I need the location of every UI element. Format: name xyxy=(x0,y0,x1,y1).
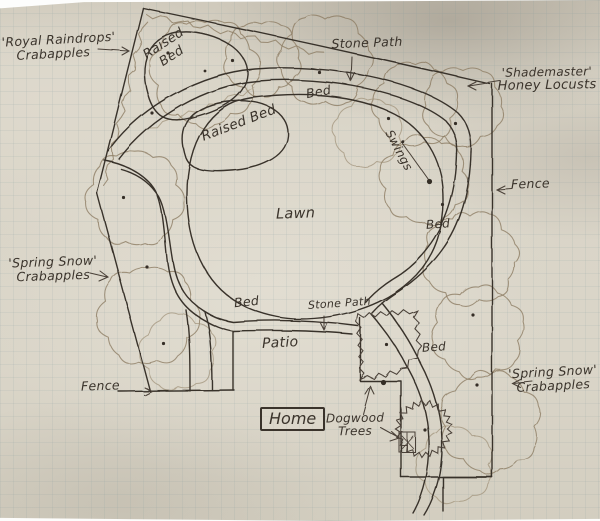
asterisk-mark xyxy=(402,433,413,450)
label-line: Trees xyxy=(326,425,384,439)
stone-path-outer xyxy=(108,68,471,152)
garden-plan-photo: 'Royal Raindrops' Crabapples Raised Bed … xyxy=(0,0,600,521)
label-royal-raindrops-crabapples: 'Royal Raindrops' Crabapples xyxy=(1,30,104,63)
swing-post-dot xyxy=(426,178,431,183)
label-fence-right: Fence xyxy=(511,176,550,191)
label-line: Stone Path xyxy=(331,34,403,51)
label-spring-snow-right: 'Spring Snow' Crabapples xyxy=(505,363,600,396)
label-line: Bed xyxy=(421,339,446,355)
stone-path-outer-left xyxy=(104,160,196,315)
label-line: Bed xyxy=(233,293,260,311)
label-line: Home xyxy=(269,409,316,428)
label-line: Fence xyxy=(511,175,550,191)
stone-path-bottom-lower xyxy=(196,315,352,334)
stone-path-inner-left xyxy=(121,169,204,311)
label-line: Patio xyxy=(262,334,299,352)
dogwood-bed-outline xyxy=(356,310,422,379)
tree-canopy xyxy=(416,426,492,504)
label-line: Fence xyxy=(81,377,120,393)
crabapple-canopy xyxy=(85,151,184,244)
fence-step-bottom-right xyxy=(443,477,492,511)
stone-path-bottom-upper xyxy=(204,311,358,326)
label-line: Bed xyxy=(425,216,450,232)
label-bed-bottom-left: Bed xyxy=(233,294,259,311)
label-shademaster-honey-locusts: 'Shademaster' Honey Locusts xyxy=(494,65,600,95)
path-branch-to-fence xyxy=(186,310,190,391)
label-patio: Patio xyxy=(262,335,299,353)
crabapple-canopy xyxy=(96,267,200,363)
label-stone-path-top: Stone Path xyxy=(330,35,404,52)
tree-canopy xyxy=(139,312,216,390)
label-fence-bottom: Fence xyxy=(81,378,120,393)
label-line: Honey Locusts xyxy=(494,79,600,95)
home-label-box: Home xyxy=(260,407,325,431)
label-spring-snow-left: 'Spring Snow' Crabapples xyxy=(4,253,103,284)
fence-line-bottom xyxy=(118,390,234,391)
arrow-stone-path-top xyxy=(347,57,355,81)
label-lawn: Lawn xyxy=(276,205,316,223)
label-bed-right: Bed xyxy=(426,217,451,232)
arrow-fence-right xyxy=(497,186,512,194)
house-wall xyxy=(360,318,401,477)
label-bed-bottom-right: Bed xyxy=(422,340,447,355)
label-line: Lawn xyxy=(276,205,316,222)
label-dogwood-trees: Dogwood Trees xyxy=(326,411,384,439)
stone-path-outer-right xyxy=(372,152,471,313)
